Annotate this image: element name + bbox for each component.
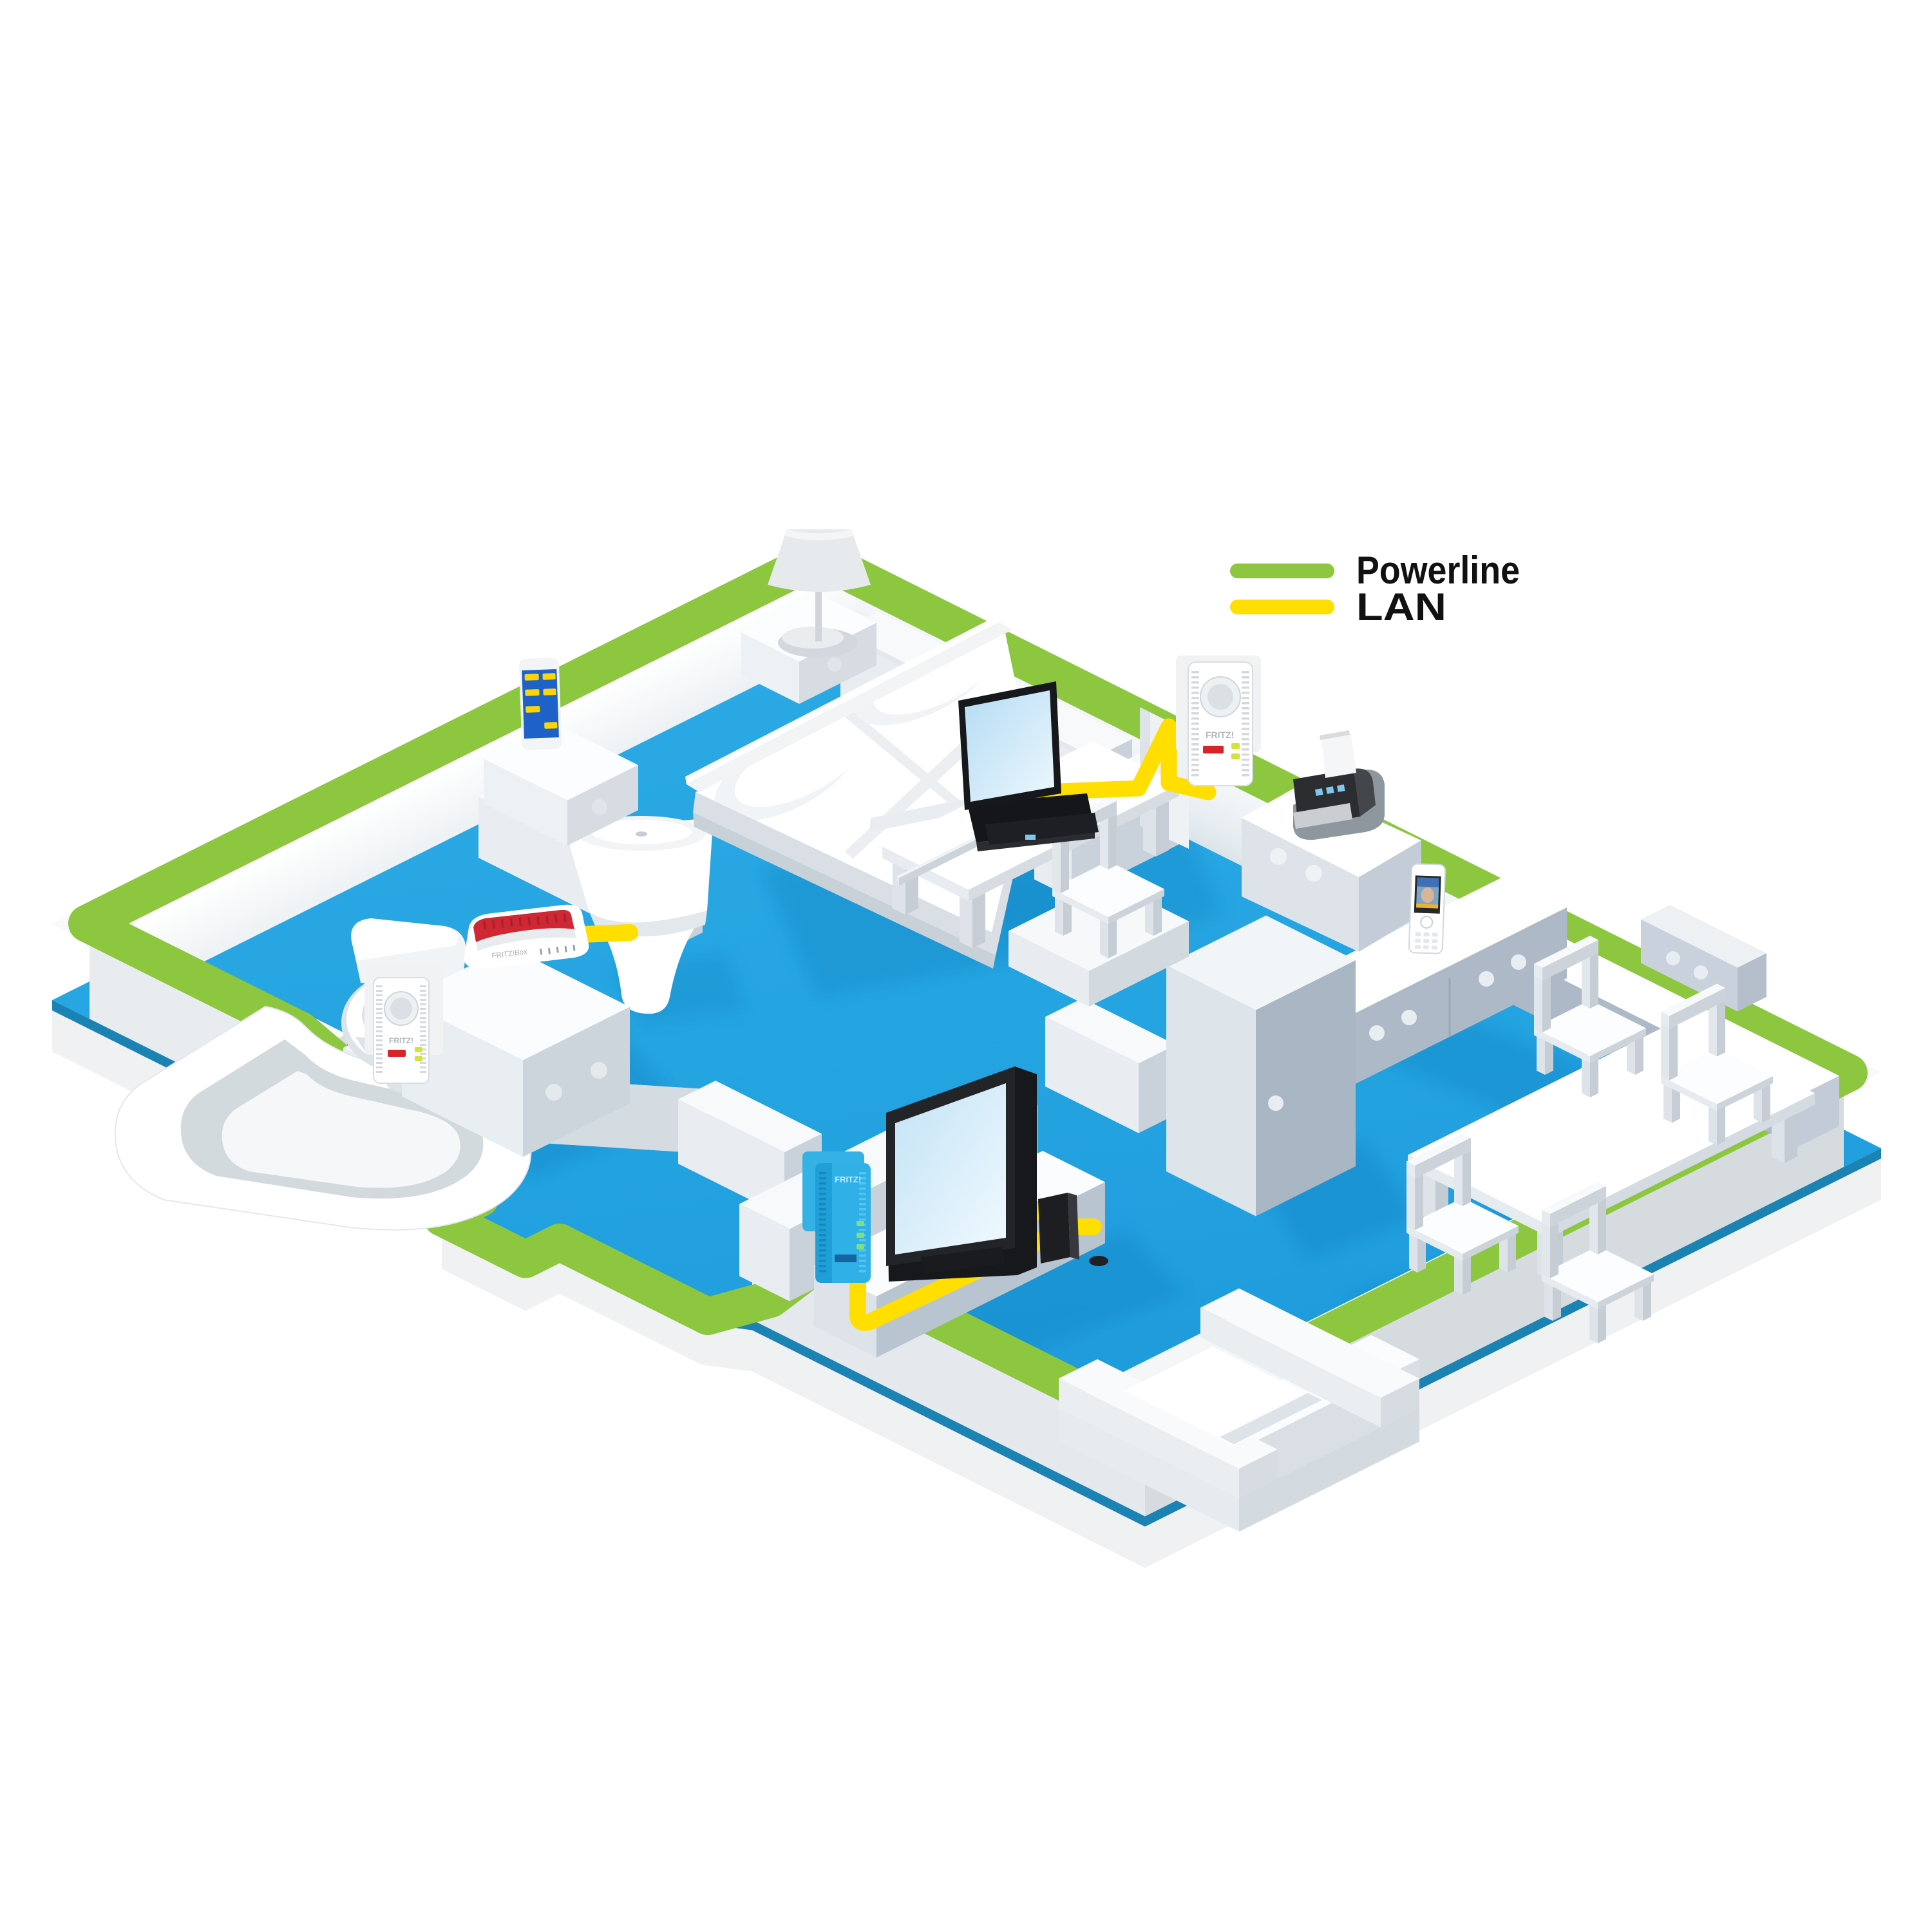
- svg-text:FRITZ!: FRITZ!: [1206, 730, 1234, 740]
- svg-text:LAN: LAN: [1356, 585, 1446, 629]
- svg-text:FRITZ!: FRITZ!: [389, 1036, 413, 1045]
- svg-text:FRITZ!: FRITZ!: [835, 1175, 861, 1184]
